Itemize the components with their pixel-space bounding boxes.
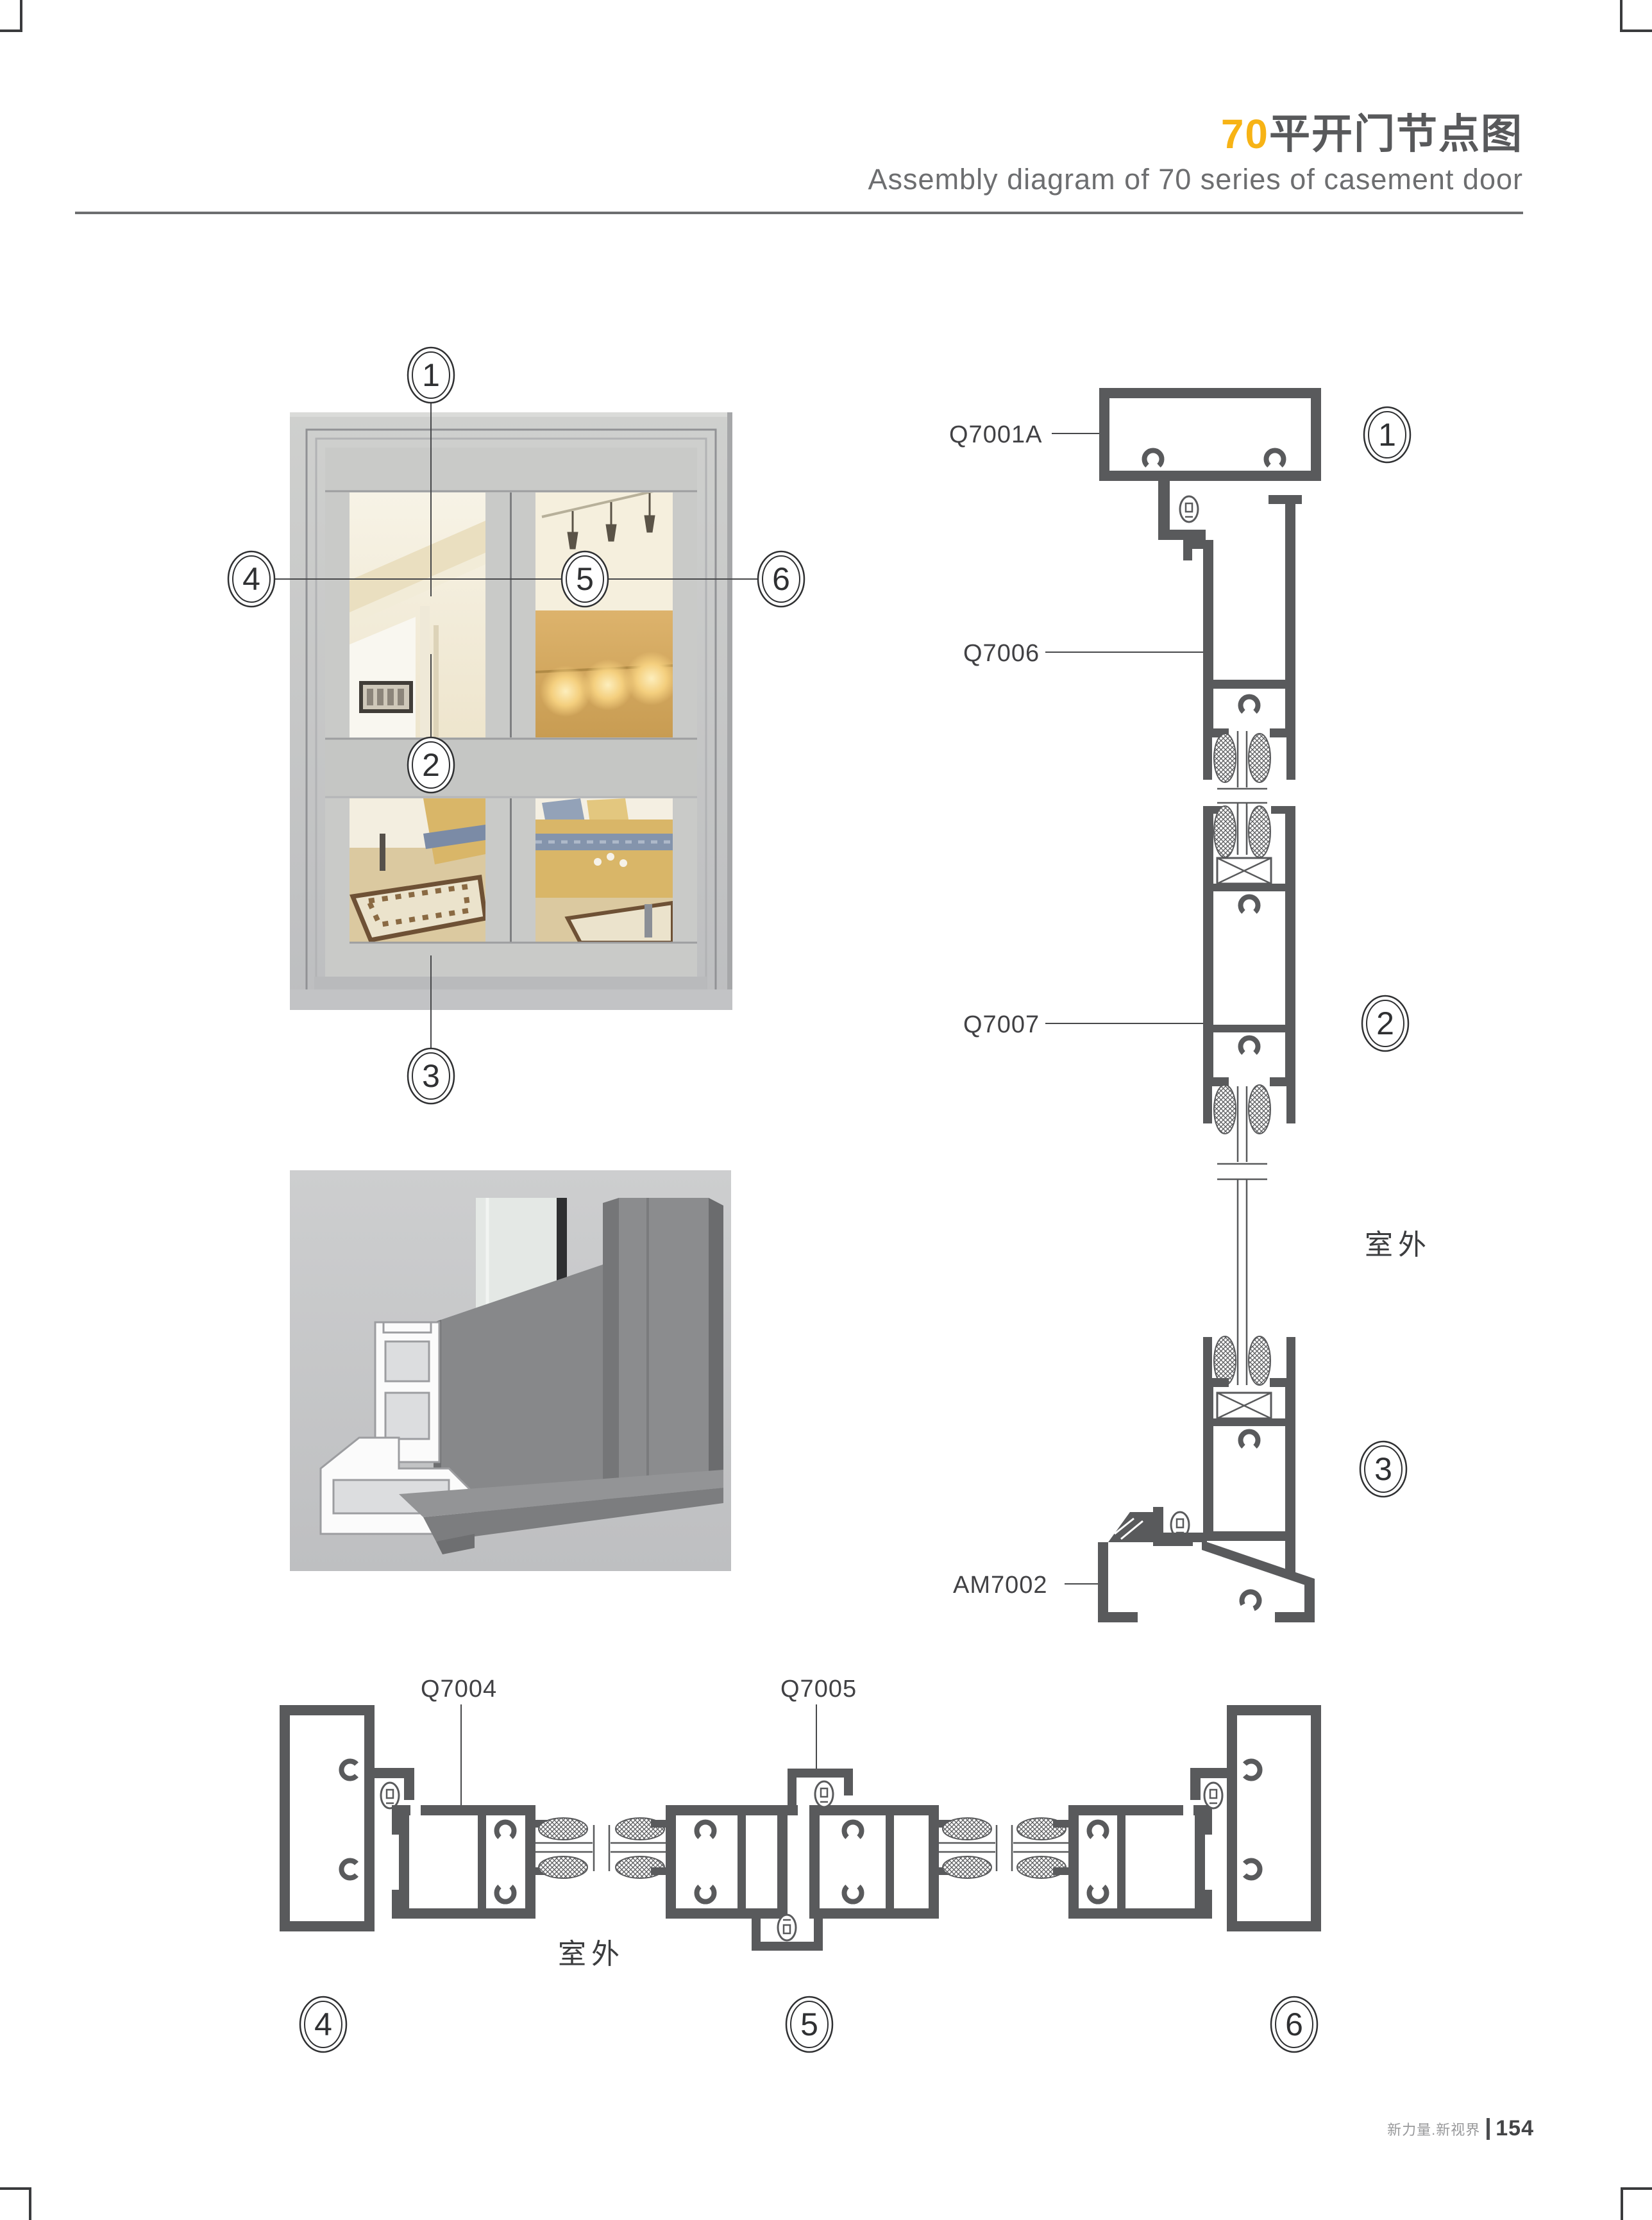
footer-page-number: 154: [1496, 2116, 1534, 2141]
head-connector-detail: [1158, 481, 1206, 540]
profile-mid-rail: [1203, 806, 1295, 1123]
title-series-number: 70: [1221, 111, 1269, 157]
photo-callout-2-number: 2: [422, 747, 440, 783]
profile-left-stile: [392, 1805, 551, 1919]
label-sill: AM7002: [953, 1572, 1048, 1599]
astragal-top-cap: [788, 1769, 853, 1807]
vsection-callout-3: 3: [1360, 1442, 1406, 1497]
catalog-page: 70平开门节点图 Assembly diagram of 70 series o…: [0, 0, 1652, 2220]
x-box-seal: [1217, 1393, 1271, 1418]
hsection-callout-5-number: 5: [800, 2006, 818, 2042]
hsection-callout-4-number: 4: [314, 2006, 332, 2042]
photo-callout-1: 1: [408, 348, 454, 403]
profile-right-stile: [1053, 1805, 1212, 1919]
hsection-callout-4: 4: [300, 1997, 346, 2052]
page-footer: 新力量.新视界 154: [1387, 2116, 1534, 2141]
profile-left-jamb: [280, 1705, 375, 1931]
vsection-callout-2-number: 2: [1376, 1005, 1394, 1041]
profile-3d-render: [282, 1161, 737, 1584]
footer-divider: [1487, 2118, 1490, 2140]
outdoor-label-horizontal: 室外: [558, 1938, 625, 1970]
label-astragal: Q7005: [780, 1676, 857, 1703]
left-glass: [535, 1818, 666, 1878]
photo-callout-2: 2: [408, 737, 454, 793]
hsection-callout-6: 6: [1271, 1997, 1317, 2052]
photo-callout-4-number: 4: [242, 561, 260, 597]
profile-head-frame: [1099, 388, 1321, 481]
label-head-frame: Q7001A: [949, 421, 1042, 448]
astragal-bottom-cap: [752, 1915, 823, 1951]
right-jamb-connector: [1190, 1768, 1230, 1808]
photo-callout-3: 3: [408, 1048, 454, 1104]
crop-mark-top-left-icon: [0, 0, 22, 32]
footer-slogan: 新力量.新视界: [1387, 2119, 1480, 2139]
hsection-callout-6-number: 6: [1285, 2006, 1303, 2042]
label-top-rail: Q7006: [963, 640, 1040, 667]
photo-callout-4: 4: [228, 551, 274, 607]
photo-interior-lower-right: [535, 798, 673, 943]
photo-callout-5-number: 5: [576, 561, 594, 597]
vertical-section-diagram: Q7001A Q7006 Q7007 AM7002 室外 1 2 3: [898, 346, 1507, 1667]
lower-glass: [1214, 1085, 1270, 1385]
photo-callout-3-number: 3: [422, 1058, 440, 1094]
left-jamb-connector: [375, 1768, 414, 1808]
door-photo-figure: 1 4 5 6 2 3: [212, 340, 821, 1116]
photo-callout-1-number: 1: [422, 357, 440, 393]
label-stile: Q7004: [421, 1676, 497, 1703]
page-subtitle: Assembly diagram of 70 series of casemen…: [868, 163, 1523, 196]
vsection-callout-1: 1: [1364, 407, 1410, 462]
title-text-cn: 平开门节点图: [1269, 111, 1523, 157]
profile-right-jamb: [1227, 1705, 1321, 1931]
crop-mark-bottom-right-icon: [1621, 2187, 1652, 2220]
horizontal-section-diagram: Q7004 Q7005 室外 4 5 6: [212, 1642, 1507, 2078]
door-photo: [290, 412, 732, 1010]
profile-meeting-stiles: [651, 1769, 954, 1951]
vsection-callout-3-number: 3: [1374, 1451, 1392, 1487]
vsection-callout-2: 2: [1362, 996, 1408, 1051]
photo-callout-6-number: 6: [772, 561, 790, 597]
page-title: 70平开门节点图: [1221, 101, 1523, 160]
crop-mark-bottom-left-icon: [0, 2187, 31, 2220]
x-box-seal: [1217, 858, 1271, 884]
outdoor-label-vertical: 室外: [1365, 1229, 1431, 1261]
photo-callout-5: 5: [562, 551, 608, 607]
photo-callout-6: 6: [758, 551, 804, 607]
hsection-callout-5: 5: [786, 1997, 832, 2052]
header-divider: [75, 212, 1523, 214]
vsection-callout-1-number: 1: [1378, 417, 1396, 453]
label-mid-rail: Q7007: [963, 1011, 1040, 1038]
crop-mark-top-right-icon: [1620, 0, 1652, 32]
right-glass: [939, 1818, 1068, 1878]
vertical-section-labels: Q7001A Q7006 Q7007 AM7002 室外: [949, 421, 1431, 1599]
